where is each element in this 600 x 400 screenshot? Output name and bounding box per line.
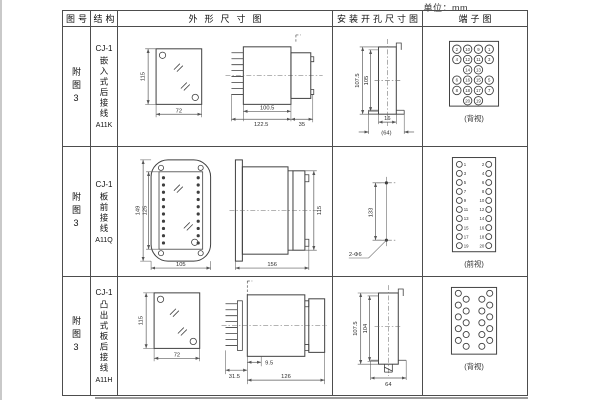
figure-number-cell: 附图3 <box>63 277 91 395</box>
dim-body-depth: 126 <box>281 374 291 380</box>
dim-side-height: 115 <box>317 206 323 215</box>
header-outline: 外形尺寸图 <box>118 11 333 27</box>
dim-side-depth: 156 <box>267 262 277 268</box>
model-label: CJ-1 <box>96 288 113 297</box>
terminal-view-label: (前视) <box>464 259 484 268</box>
screw-icon <box>192 94 198 100</box>
dim-cutout-inner-height: 105 <box>364 76 370 86</box>
figure-number-cell: 附图3 <box>63 27 91 147</box>
dim-front-height: 115 <box>139 316 145 325</box>
handle-icon <box>296 35 301 43</box>
header-structure: 结构 <box>91 11 118 27</box>
terminal-pins-icon <box>225 304 237 346</box>
structure-cell: CJ-1 嵌入式后接线 A11K <box>91 27 118 147</box>
dim-body-depth: 100.5 <box>260 105 274 111</box>
svg-text:18: 18 <box>480 234 485 239</box>
model-label: CJ-1 <box>96 180 113 189</box>
terminal-view-label: (背视) <box>464 114 484 123</box>
terminal-view-label: (背视) <box>464 362 484 371</box>
dim-front-width: 72 <box>174 352 180 358</box>
figure-number-cell: 附图3 <box>63 147 91 277</box>
header-mounting: 安装开孔尺寸图 <box>333 11 423 27</box>
svg-text:17: 17 <box>476 88 481 93</box>
svg-text:14: 14 <box>465 67 470 72</box>
document-page: 单位：mm 图号 结构 外形尺寸图 安装开孔尺寸图 端子图 附图3 CJ-1 嵌… <box>0 0 600 400</box>
mounting-drawing-a11k: 107.5 105 16 (64) <box>333 27 422 146</box>
dim-front-outer-height: 149 <box>136 206 142 216</box>
dim-hole-distance: 133 <box>369 208 375 218</box>
structure-name: 嵌入式后接线 <box>98 56 110 119</box>
svg-text:12: 12 <box>465 57 470 62</box>
dim-front-height: 115 <box>141 72 147 81</box>
dim-cutout-inner-height: 104 <box>363 323 369 333</box>
structure-cell: CJ-1 凸出式板后接线 A11H <box>91 277 118 395</box>
svg-text:5: 5 <box>488 78 491 83</box>
svg-text:16: 16 <box>480 225 485 230</box>
mounting-hole-icon <box>158 165 163 170</box>
outline-drawing-cell: 115 72 100.5 122.5 35 <box>118 27 333 147</box>
dim-front-inner-height: 125 <box>143 206 149 216</box>
model-label: CJ-1 <box>96 44 113 53</box>
mounting-drawing-a11h: 107.5 104 64 <box>333 277 422 395</box>
page-edge-shadow <box>95 397 528 399</box>
svg-text:5: 5 <box>464 180 467 185</box>
terminal-grid: 1234567891011121314151617181920 <box>456 161 491 248</box>
dim-front-width: 72 <box>176 108 182 114</box>
dim-overall-width: (64) <box>381 130 391 136</box>
dim-overall-width: 64 <box>385 382 392 388</box>
header-terminal: 端子图 <box>423 11 527 27</box>
dim-pin-depth: 31.5 <box>229 374 240 380</box>
svg-text:13: 13 <box>476 67 481 72</box>
mounting-drawing-cell: 107.5 105 16 (64) <box>333 27 423 147</box>
screw-icon <box>157 296 163 302</box>
mounting-hole-icon <box>198 251 203 256</box>
svg-text:11: 11 <box>464 207 469 212</box>
svg-text:15: 15 <box>464 225 469 230</box>
front-view: 115 72 <box>141 49 202 117</box>
side-view: 100.5 122.5 35 <box>225 35 322 128</box>
svg-text:16: 16 <box>465 78 470 83</box>
svg-text:6: 6 <box>482 180 485 185</box>
spec-table: 图号 结构 外形尺寸图 安装开孔尺寸图 端子图 附图3 CJ-1 嵌入式后接线 … <box>62 10 528 396</box>
svg-text:1: 1 <box>488 47 491 52</box>
screw-icon <box>190 338 196 344</box>
mounting-hole-icon <box>158 251 163 256</box>
terminal-diagram-a11h: (背视) <box>423 277 527 395</box>
front-view: 115 72 <box>139 293 200 361</box>
glass-hatch-icon <box>174 185 193 231</box>
outline-drawing-cell: 149 125 105 156 115 <box>118 147 333 277</box>
front-view: 149 125 105 <box>136 160 211 270</box>
terminal-diagram-cell: (背视) <box>423 277 527 395</box>
terminal-diagram-cell: 1234567891011121314151617181920 (前视) <box>423 147 527 277</box>
structure-code: A11Q <box>95 237 112 244</box>
dim-gap-depth: 9.5 <box>265 360 273 366</box>
handle-icon <box>247 281 252 295</box>
svg-text:14: 14 <box>480 216 485 221</box>
svg-text:11: 11 <box>476 57 481 62</box>
structure-cell: CJ-1 板前接线 A11Q <box>91 147 118 277</box>
svg-text:19: 19 <box>464 243 469 248</box>
svg-text:20: 20 <box>480 243 485 248</box>
svg-text:9: 9 <box>477 47 480 52</box>
dim-total-depth: 122.5 <box>254 122 268 128</box>
page-edge-left <box>0 0 2 400</box>
svg-text:4: 4 <box>482 171 485 176</box>
svg-text:6: 6 <box>456 78 459 83</box>
svg-text:17: 17 <box>464 234 469 239</box>
dim-cutout-outer-height: 107.5 <box>355 73 361 87</box>
svg-text:4: 4 <box>456 57 459 62</box>
terminal-grid: 2109141211314136161558181772019 <box>453 45 494 105</box>
outline-drawing-cell: 115 72 31.5 9.5 <box>118 277 333 395</box>
svg-text:3: 3 <box>488 57 491 62</box>
svg-text:13: 13 <box>464 216 469 221</box>
svg-text:10: 10 <box>480 198 485 203</box>
svg-text:12: 12 <box>480 207 485 212</box>
svg-text:2: 2 <box>482 162 485 167</box>
svg-text:7: 7 <box>488 88 491 93</box>
structure-name: 板前接线 <box>98 192 110 234</box>
dim-cutout-outer-height: 107.5 <box>353 321 359 335</box>
glass-hatch-icon <box>170 309 187 336</box>
side-view: 31.5 9.5 126 <box>222 281 327 384</box>
figure-number: 附图3 <box>70 192 83 232</box>
svg-text:19: 19 <box>476 98 481 103</box>
glass-hatch-icon <box>174 64 190 91</box>
mounting-drawing-cell: 133 2-Φ6 <box>333 147 423 277</box>
terminal-diagram-a11k: 2109141211314136161558181772019 (背视) <box>423 27 527 146</box>
mounting-drawing-cell: 107.5 104 64 <box>333 277 423 395</box>
svg-text:8: 8 <box>482 189 485 194</box>
dim-rear-depth: 35 <box>299 122 305 128</box>
mounting-drawing-a11q: 133 2-Φ6 <box>333 147 422 276</box>
structure-name: 凸出式板后接线 <box>98 300 110 374</box>
figure-number: 附图3 <box>70 67 83 107</box>
terminal-diagram-a11q: 1234567891011121314151617181920 (前视) <box>423 147 527 276</box>
hole-spec-label: 2-Φ6 <box>349 252 362 258</box>
svg-text:18: 18 <box>465 88 470 93</box>
structure-code: A11K <box>96 122 113 129</box>
dim-slot-width: 16 <box>384 116 390 122</box>
svg-text:8: 8 <box>456 88 459 93</box>
mounting-hole-icon <box>198 165 203 170</box>
structure-code: A11H <box>96 377 113 384</box>
screw-icon <box>159 52 165 58</box>
svg-text:3: 3 <box>464 171 467 176</box>
terminal-diagram-cell: 2109141211314136161558181772019 (背视) <box>423 27 527 147</box>
svg-text:15: 15 <box>476 78 481 83</box>
outline-drawing-a11q: 149 125 105 156 115 <box>118 147 332 276</box>
outline-drawing-a11h: 115 72 31.5 9.5 <box>118 277 332 395</box>
side-view: 156 115 <box>229 160 322 270</box>
svg-text:1: 1 <box>464 162 467 167</box>
outline-drawing-a11k: 115 72 100.5 122.5 35 <box>118 27 332 146</box>
header-figure: 图号 <box>63 11 91 27</box>
terminal-grid <box>455 290 492 349</box>
svg-text:2: 2 <box>456 47 459 52</box>
svg-text:20: 20 <box>465 98 470 103</box>
dim-front-width: 105 <box>176 262 186 268</box>
svg-text:9: 9 <box>464 198 467 203</box>
drill-hole-icon <box>385 181 388 184</box>
figure-number: 附图3 <box>70 316 83 356</box>
svg-text:10: 10 <box>465 47 470 52</box>
svg-text:7: 7 <box>464 189 467 194</box>
terminal-pins-icon <box>231 53 243 95</box>
